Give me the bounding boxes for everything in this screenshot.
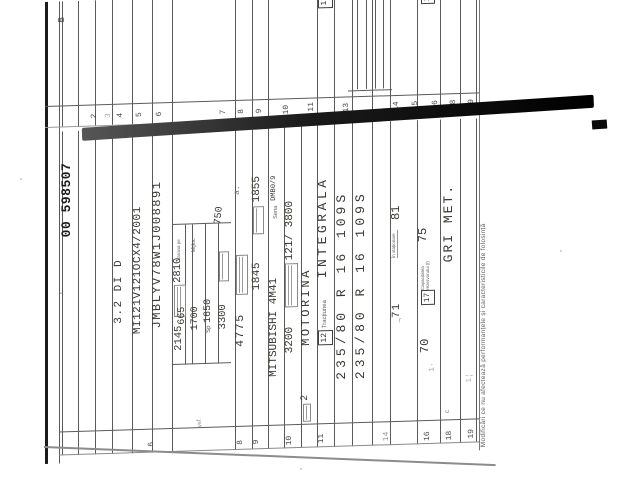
footer-note: Modificări ce nu afectează performanțele… [481, 223, 488, 447]
colour-value: GRI MET. [442, 184, 455, 263]
vin-value: JMBLYV78W1J008891 [151, 180, 163, 328]
row-number: 5 [136, 112, 144, 117]
row-line [252, 0, 253, 120]
cell-line [357, 0, 358, 89]
row-line [460, 0, 461, 114]
scan-artifact: ¬ [397, 318, 405, 323]
section-marker: B [58, 17, 67, 23]
row-line [417, 0, 418, 115]
traction-label: Tracțiunea [322, 300, 328, 328]
axle-load-1-value: 665 [178, 306, 188, 324]
row-line [390, 121, 391, 445]
row-number: 7 [220, 109, 228, 114]
row-line [352, 0, 353, 117]
row-line [334, 0, 335, 118]
traction-value: INTEGRALA [316, 176, 329, 278]
fuel-value: MOTORINA [300, 268, 312, 346]
power-rpm-value: 121/ 3800 [285, 201, 296, 261]
colour-caption-initial: c [444, 410, 451, 414]
engine-series-label: Seria [274, 206, 280, 219]
scan-speck [300, 468, 302, 470]
subrow-line [205, 224, 206, 364]
axle-load-3-value: 1650 [204, 299, 214, 323]
scan-speck [560, 250, 562, 252]
row-number: 6 [156, 111, 164, 116]
scan-artifact: 1· [429, 362, 437, 372]
document-scan-area: 00 598507 B 3.2 DI D MI121V121OCX4/2001 … [45, 0, 495, 468]
approval-number-value: MI121V121OCX4/2001 [133, 206, 144, 334]
document-serial-number: 00 598507 [60, 162, 73, 237]
axle-load-3-prefix: Sp [206, 325, 212, 333]
illegible-label-box [285, 263, 298, 307]
row-line [372, 122, 373, 446]
row-number: 10 [286, 436, 294, 446]
scan-blob-artifact [592, 119, 608, 129]
row-line [152, 0, 153, 124]
row-line [95, 130, 96, 454]
row-line [476, 118, 477, 442]
cylinders-value: 2 [301, 395, 311, 401]
row-number: 9 [256, 108, 264, 113]
engine-series-value: DMB0/9 [271, 175, 278, 200]
cell-line [375, 0, 376, 89]
width-value: 1845 [252, 262, 263, 291]
handwritten-note: vsf. [196, 417, 204, 427]
noise-standing-label: În staționare [392, 230, 398, 258]
row-line [317, 0, 318, 118]
tyre-rear-value: 235/80 R 16 109S [354, 190, 367, 379]
scanned-vehicle-document: 00 598507 B 3.2 DI D MI121V121OCX4/2001 … [0, 0, 640, 480]
axle-middle-label: Mijloc [192, 238, 198, 252]
height-value: 1855 [252, 176, 263, 203]
row-number: 9 [253, 439, 261, 444]
row-line [112, 0, 113, 125]
row-line [78, 131, 79, 455]
illegible-label-box [219, 251, 229, 281]
row-number: 3 [105, 113, 113, 118]
scan-speck [20, 178, 22, 180]
field-17-box: 17 [421, 290, 435, 305]
tow-braked-value: 3300 [218, 304, 229, 330]
row-line [440, 120, 441, 444]
row-line [440, 0, 441, 115]
type-variant-value: 3.2 DI D [114, 259, 125, 324]
axle-load-label: Sarcina pe [177, 237, 182, 261]
row-line [132, 0, 133, 124]
row-line [78, 1, 79, 126]
row-line [235, 0, 236, 121]
illegible-label-box [253, 206, 264, 234]
row-line [268, 0, 269, 120]
displacement-value: 3200 [285, 327, 296, 354]
row-number: 2 [91, 113, 99, 118]
mass-own-value: 2145 [174, 325, 185, 351]
row-number: 10 [283, 105, 291, 115]
illegible-label-box [236, 255, 248, 295]
field-17-box-continuation: 17 [421, 0, 435, 4]
engine-type-value: MITSUBISHI 4M41 [269, 278, 280, 377]
scan-artifact: ' [61, 290, 69, 295]
scan-artifact: 1¦ [466, 373, 474, 383]
tank-capacity-value: 75 [417, 228, 429, 243]
row-number: 8 [237, 440, 245, 445]
noise-drive-value: 71 [392, 303, 403, 319]
row-line [317, 123, 318, 447]
tyre-front-value: 235/80 R 16 109S [335, 191, 348, 380]
outer-top-border [45, 2, 48, 464]
row-line [460, 119, 461, 443]
row-line [172, 0, 173, 123]
row-number: 16 [424, 431, 432, 441]
row-line [372, 0, 373, 117]
row-line [172, 128, 173, 452]
row-number: 8 [238, 109, 246, 114]
length-value: 4775 [235, 313, 247, 347]
row-number: 11 [308, 102, 316, 112]
row-number: 19 [468, 429, 476, 439]
row-number: 4 [117, 113, 125, 118]
row-line [476, 0, 477, 113]
number-column-rule [59, 418, 479, 432]
field-12-box: 12 [318, 330, 333, 345]
subtable-edge [172, 362, 231, 365]
tank-capacity-label: Capacitatea rezervorului (l) [421, 248, 430, 290]
field16-value: 70 [419, 338, 431, 353]
noise-standing-value: 81 [390, 205, 402, 220]
mass-max-value: 2810 [173, 257, 184, 283]
row-number: 11 [318, 434, 326, 444]
cell-line [348, 89, 392, 91]
row-number: 18 [446, 431, 454, 441]
cell-line [383, 0, 384, 88]
row-line [95, 0, 96, 125]
row-number: 6 [148, 442, 156, 447]
axle-load-2-value: 1700 [191, 306, 201, 330]
faint-mark: a. [234, 185, 242, 195]
cell-line [366, 0, 367, 89]
field-12-box-continuation: 12 [318, 0, 333, 8]
illegible-label-box [303, 404, 311, 422]
row-number: 14 [383, 432, 391, 442]
vehicle-identity-card: 00 598507 B 3.2 DI D MI121V121OCX4/2001 … [45, 0, 491, 464]
subrow-line [218, 224, 219, 364]
tow-unbraked-value: 750 [214, 206, 226, 225]
row-line [390, 0, 391, 116]
row-line [417, 120, 418, 444]
